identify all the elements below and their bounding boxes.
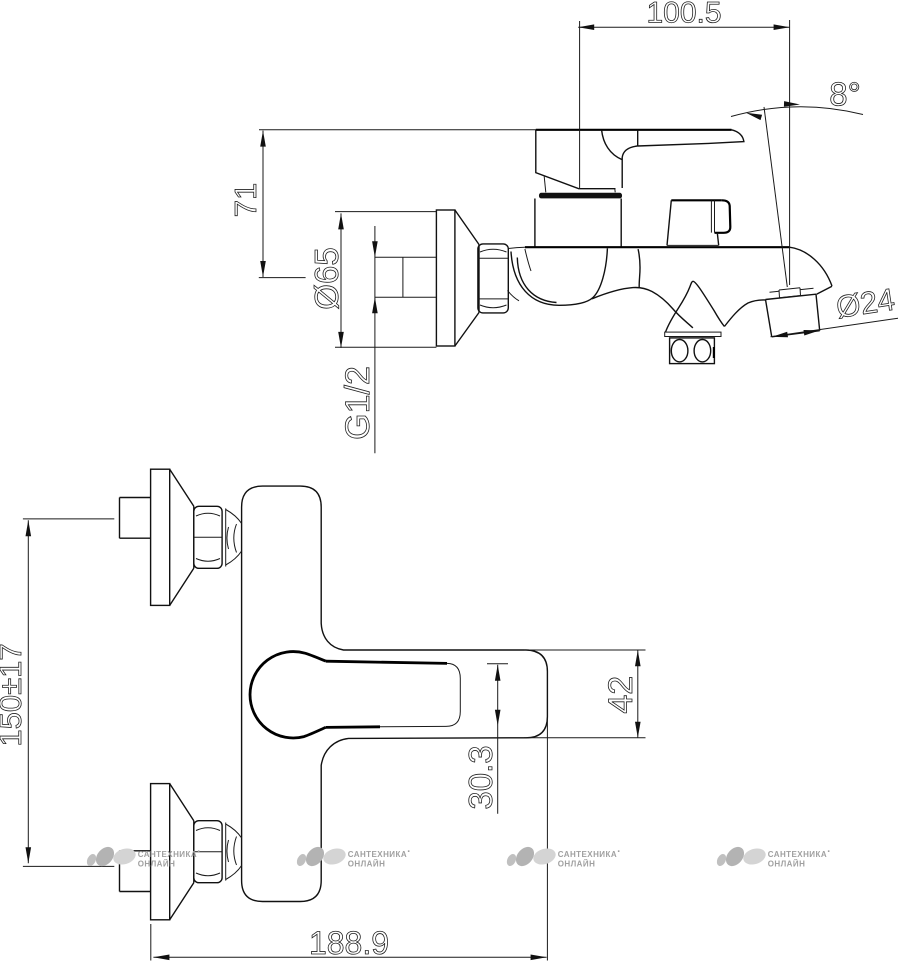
- svg-text:8°: 8°: [829, 76, 861, 113]
- svg-text:ОНЛАЙН: ОНЛАЙН: [558, 860, 596, 869]
- svg-text:188.9: 188.9: [309, 925, 389, 961]
- svg-text:Ø24: Ø24: [834, 282, 897, 325]
- svg-text:100.5: 100.5: [646, 0, 721, 30]
- svg-text:30.3: 30.3: [462, 745, 499, 809]
- svg-text:ОНЛАЙН: ОНЛАЙН: [138, 860, 176, 869]
- svg-text:G1/2: G1/2: [339, 366, 377, 440]
- svg-text:Ø65: Ø65: [308, 247, 345, 309]
- svg-text:42: 42: [602, 676, 640, 714]
- svg-text:САНТЕХНИКА·: САНТЕХНИКА·: [768, 846, 832, 859]
- svg-text:150±17: 150±17: [0, 643, 28, 746]
- svg-text:САНТЕХНИКА·: САНТЕХНИКА·: [348, 846, 412, 859]
- svg-text:71: 71: [228, 183, 263, 217]
- svg-text:ОНЛАЙН: ОНЛАЙН: [768, 860, 806, 869]
- svg-text:САНТЕХНИКА·: САНТЕХНИКА·: [558, 846, 622, 859]
- svg-text:ОНЛАЙН: ОНЛАЙН: [348, 860, 386, 869]
